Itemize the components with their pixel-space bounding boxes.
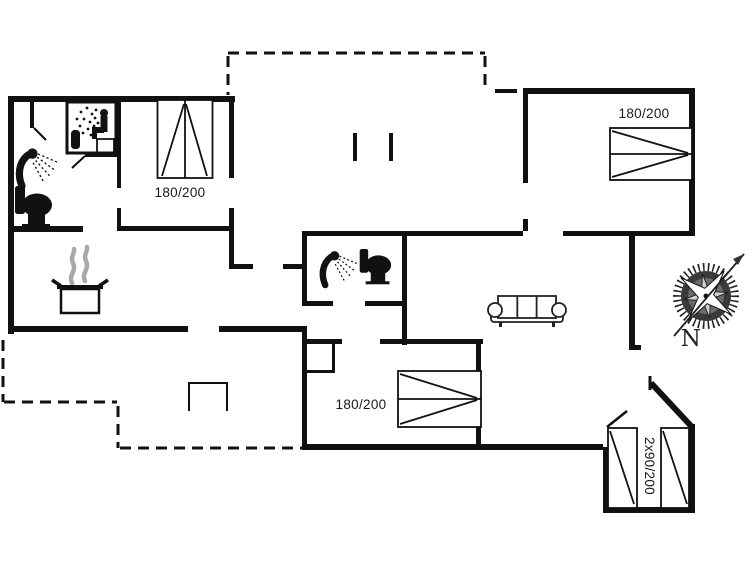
wall-segment <box>117 96 121 188</box>
wall-segment <box>8 96 14 334</box>
wall-segment <box>8 326 188 332</box>
cooking-pot-icon <box>52 247 108 313</box>
fireplace-outline <box>189 383 227 411</box>
wall-segment <box>302 339 342 344</box>
terrace-post <box>389 133 393 161</box>
sofa-icon <box>488 296 566 327</box>
wall-segment <box>563 231 695 236</box>
wall-segment <box>302 231 307 306</box>
wall-segment <box>229 96 234 178</box>
wall-segment <box>629 345 641 350</box>
bed-bottom-right-right <box>661 428 689 508</box>
bed-size-label: 180/200 <box>321 397 401 412</box>
door-swing <box>72 156 85 168</box>
wall-segment <box>495 89 517 93</box>
bed-size-label: 2x90/200 <box>641 421 657 511</box>
bed-bottom-right-left <box>608 428 637 508</box>
bed-top-right <box>610 128 692 180</box>
wall-segment <box>365 301 407 306</box>
toilet-icon <box>15 186 52 228</box>
compass-north-label: N <box>676 326 706 352</box>
sauna-icon <box>67 102 116 153</box>
bed-size-label: 180/200 <box>140 185 220 200</box>
wall-segment <box>30 96 34 128</box>
wall-segment <box>402 231 407 345</box>
door-swing <box>607 411 627 427</box>
bed-bottom-middle <box>398 371 481 427</box>
wall-segment <box>302 231 523 236</box>
bed-size-label: 180/200 <box>604 106 684 121</box>
wall-segment <box>651 383 692 427</box>
terrace-post <box>353 133 357 161</box>
wall-segment <box>229 208 234 269</box>
wall-segment <box>380 339 483 344</box>
toilet-icon <box>360 249 391 284</box>
wall-segment <box>219 326 307 332</box>
wall-segment <box>117 208 121 231</box>
shower-icon <box>19 148 58 186</box>
bed-top-left <box>158 100 213 178</box>
wall-segment <box>229 264 253 269</box>
wall-segment <box>302 301 333 306</box>
wall-segment <box>302 326 307 450</box>
wall-segment <box>117 226 233 231</box>
door-swing <box>34 128 46 140</box>
closet-wall <box>305 370 335 373</box>
wall-segment <box>523 88 528 183</box>
wall-segment <box>523 219 528 231</box>
wall-segment <box>523 88 695 94</box>
wall-segment <box>302 444 603 450</box>
shower-icon <box>323 251 358 285</box>
closet-wall <box>332 342 335 373</box>
wall-segment <box>689 424 695 513</box>
floor-plan: 180/200 180/200 180/200 2x90/200 N <box>0 0 755 566</box>
wall-segment <box>629 231 635 350</box>
entrance-diagonal-walls <box>607 376 692 427</box>
